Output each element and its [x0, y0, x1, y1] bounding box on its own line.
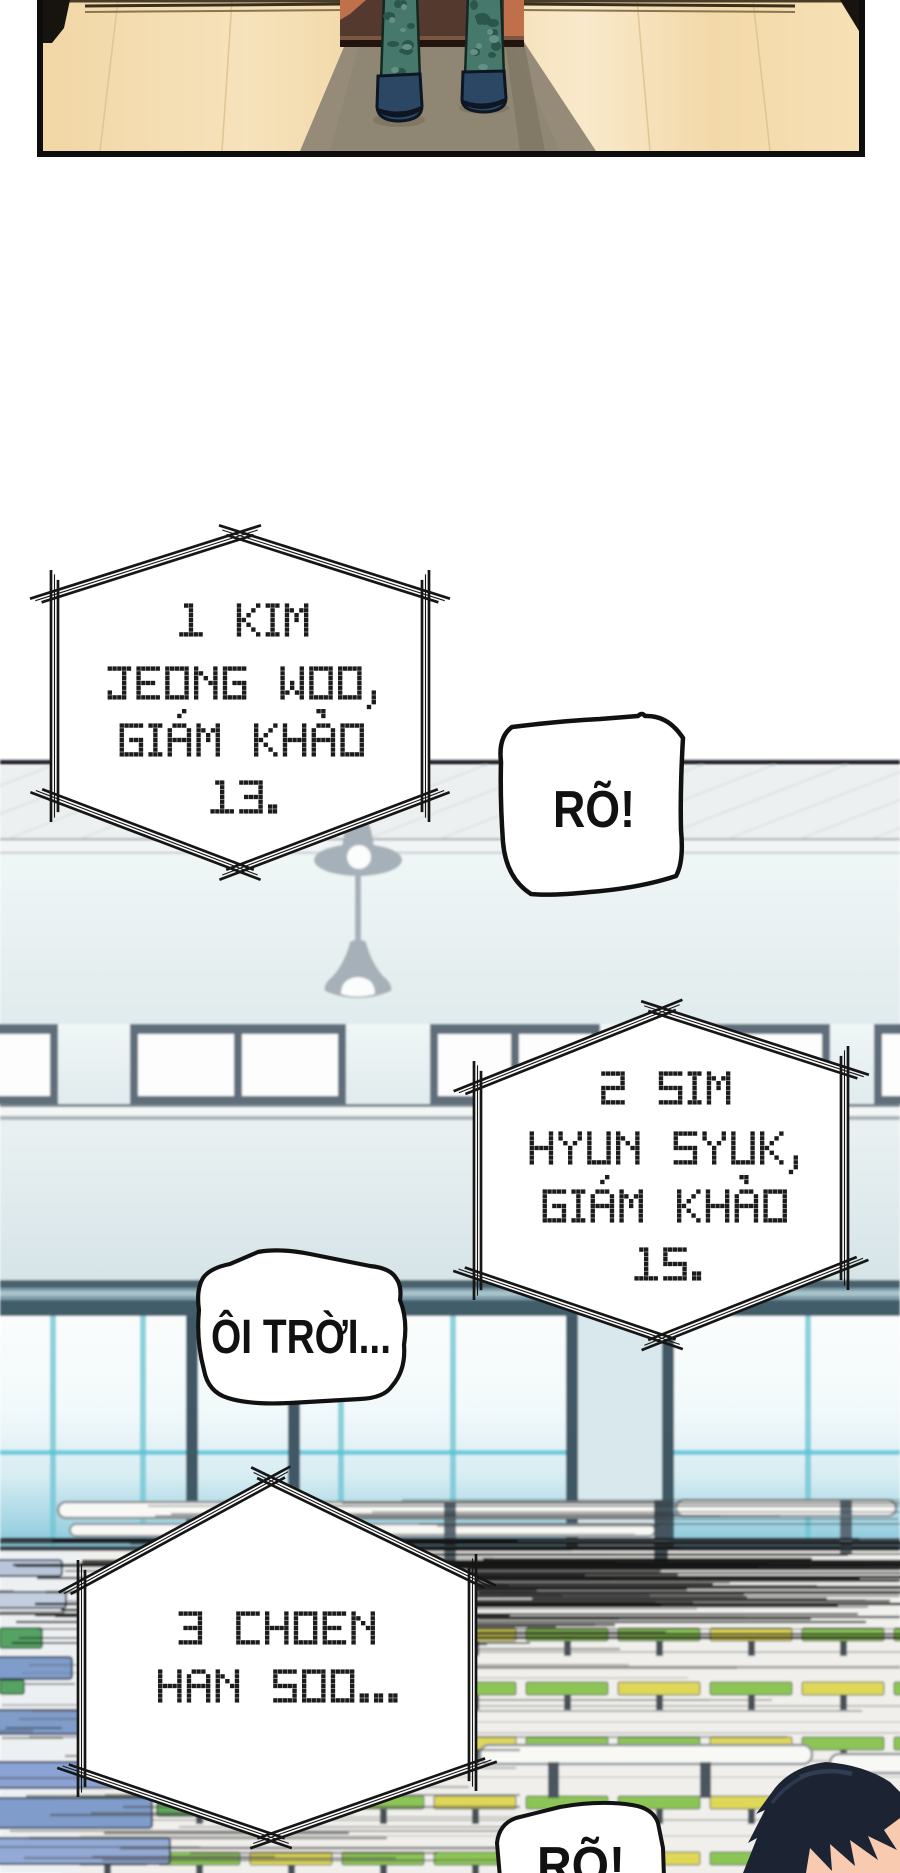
svg-text:RÕ!: RÕ! — [537, 1836, 625, 1873]
svg-text:RÕ!: RÕ! — [553, 780, 635, 839]
svg-text:ÔI TRỜI...: ÔI TRỜI... — [211, 1309, 391, 1364]
